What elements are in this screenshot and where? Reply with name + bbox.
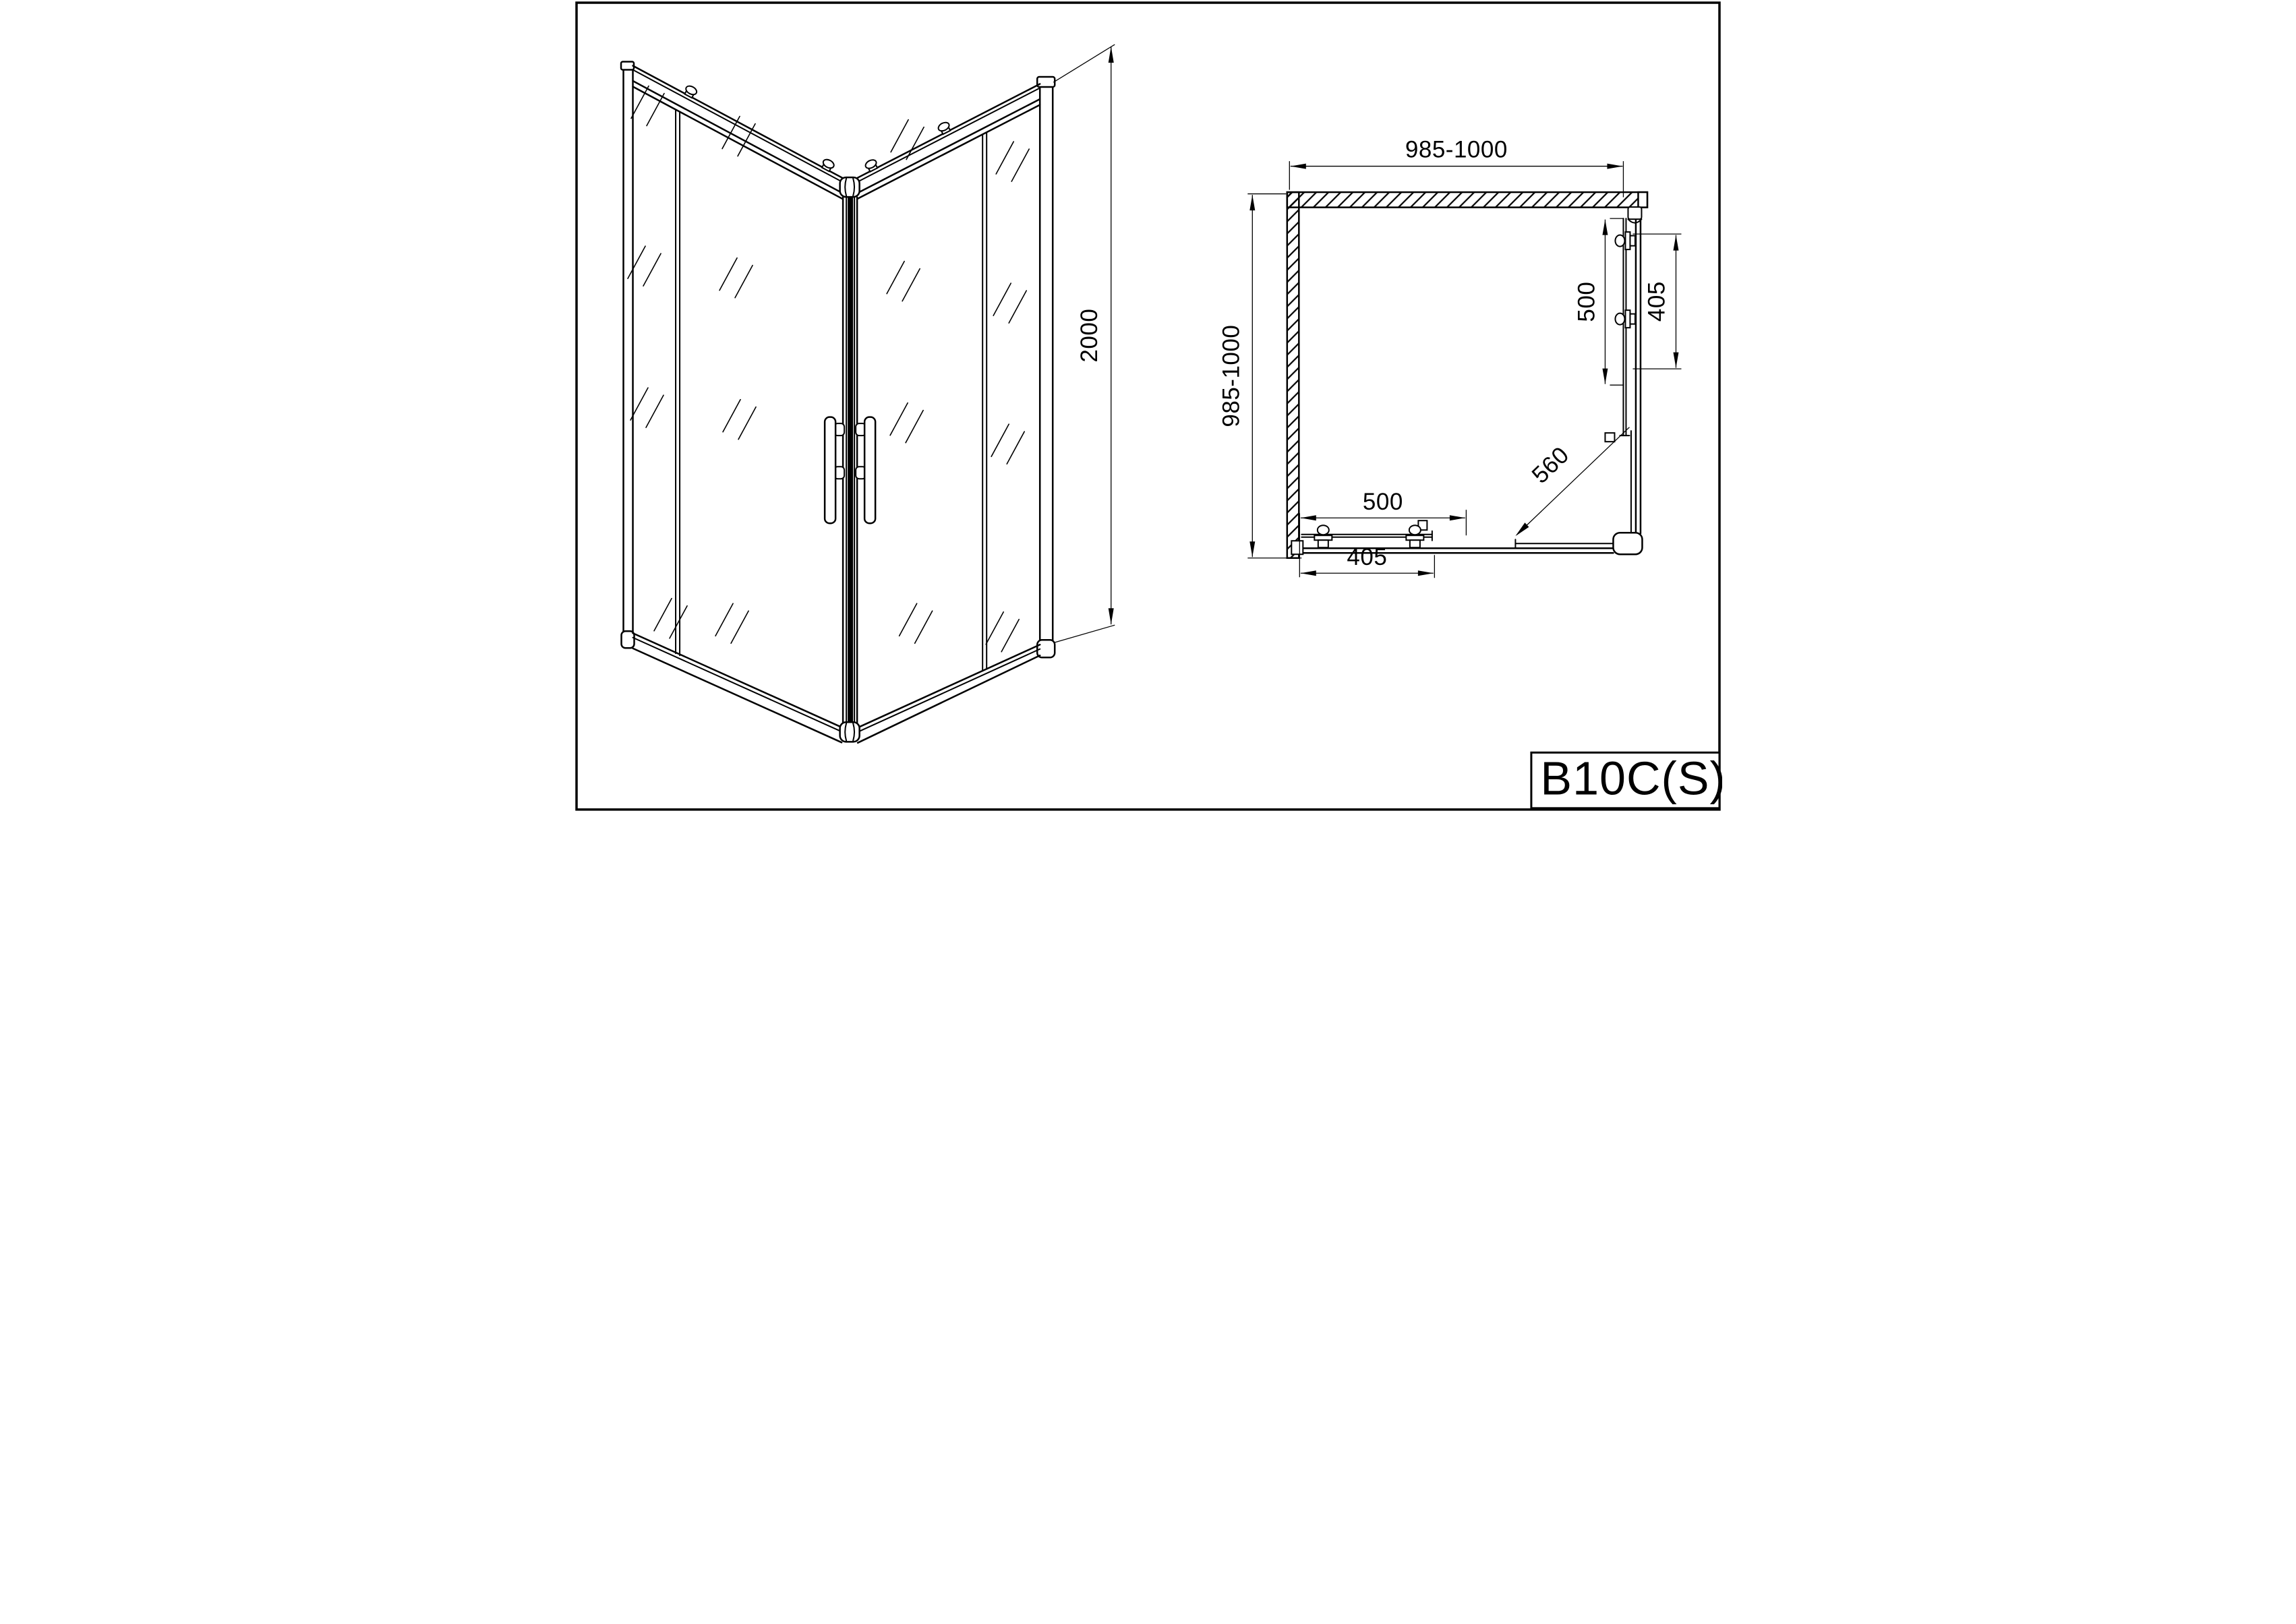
door-roller-icon [864,158,879,173]
dim-bottom-door-500-label: 500 [1363,489,1403,515]
door-roller-icon [683,84,698,98]
dim-plan-depth-label: 985-1000 [1218,325,1244,427]
dim-bottom-door-405-label: 405 [1347,544,1387,570]
drawing-sheet: 2000 [574,0,1722,812]
door-roller-icon [937,121,952,135]
dim-diagonal-560-label: 560 [1527,442,1574,489]
door-handle-right [856,417,875,524]
top-rail-right [857,84,1040,200]
left-wall-post [621,62,635,649]
dim-plan-width-label: 985-1000 [1405,137,1508,163]
wall-bracket-top [1628,207,1641,223]
corner-block [1613,533,1642,554]
title-block: B10C(S) [1531,752,1722,808]
dim-side-door-500-label: 500 [1573,282,1599,322]
dim-diagonal-560: 560 [1515,427,1629,537]
drawing-canvas: 2000 [574,0,1722,812]
right-wall-post [1037,77,1055,657]
wall-top [1287,192,1647,208]
door-roller-icon [821,158,835,172]
door-glass-right [1605,218,1631,533]
door-glass-bottom [1301,520,1613,547]
door-handle-left [825,417,844,524]
glass-panel-edges [676,110,987,671]
wall-left [1287,192,1299,558]
page-border [577,3,1719,810]
corner-post [840,177,860,742]
perspective-view: 2000 [621,44,1115,743]
track-right [1636,218,1641,533]
dim-height: 2000 [1053,44,1115,642]
plan-view: 985-1000 985-1000 500 405 [1218,137,1681,578]
model-code-label: B10C(S) [1540,752,1722,804]
bottom-rail-right [858,644,1040,743]
wall-bracket-bottom [1291,541,1303,554]
dim-height-label: 2000 [1076,309,1102,363]
door-roller-right [1615,232,1635,328]
dim-side-door-405-label: 405 [1643,281,1670,322]
dim-plan-width: 985-1000 [1289,137,1623,198]
top-rail-left [633,66,843,200]
bottom-rail-left [633,633,842,742]
dim-bottom-door-405: 405 [1301,544,1435,578]
wall-top-endcap [1638,192,1647,208]
